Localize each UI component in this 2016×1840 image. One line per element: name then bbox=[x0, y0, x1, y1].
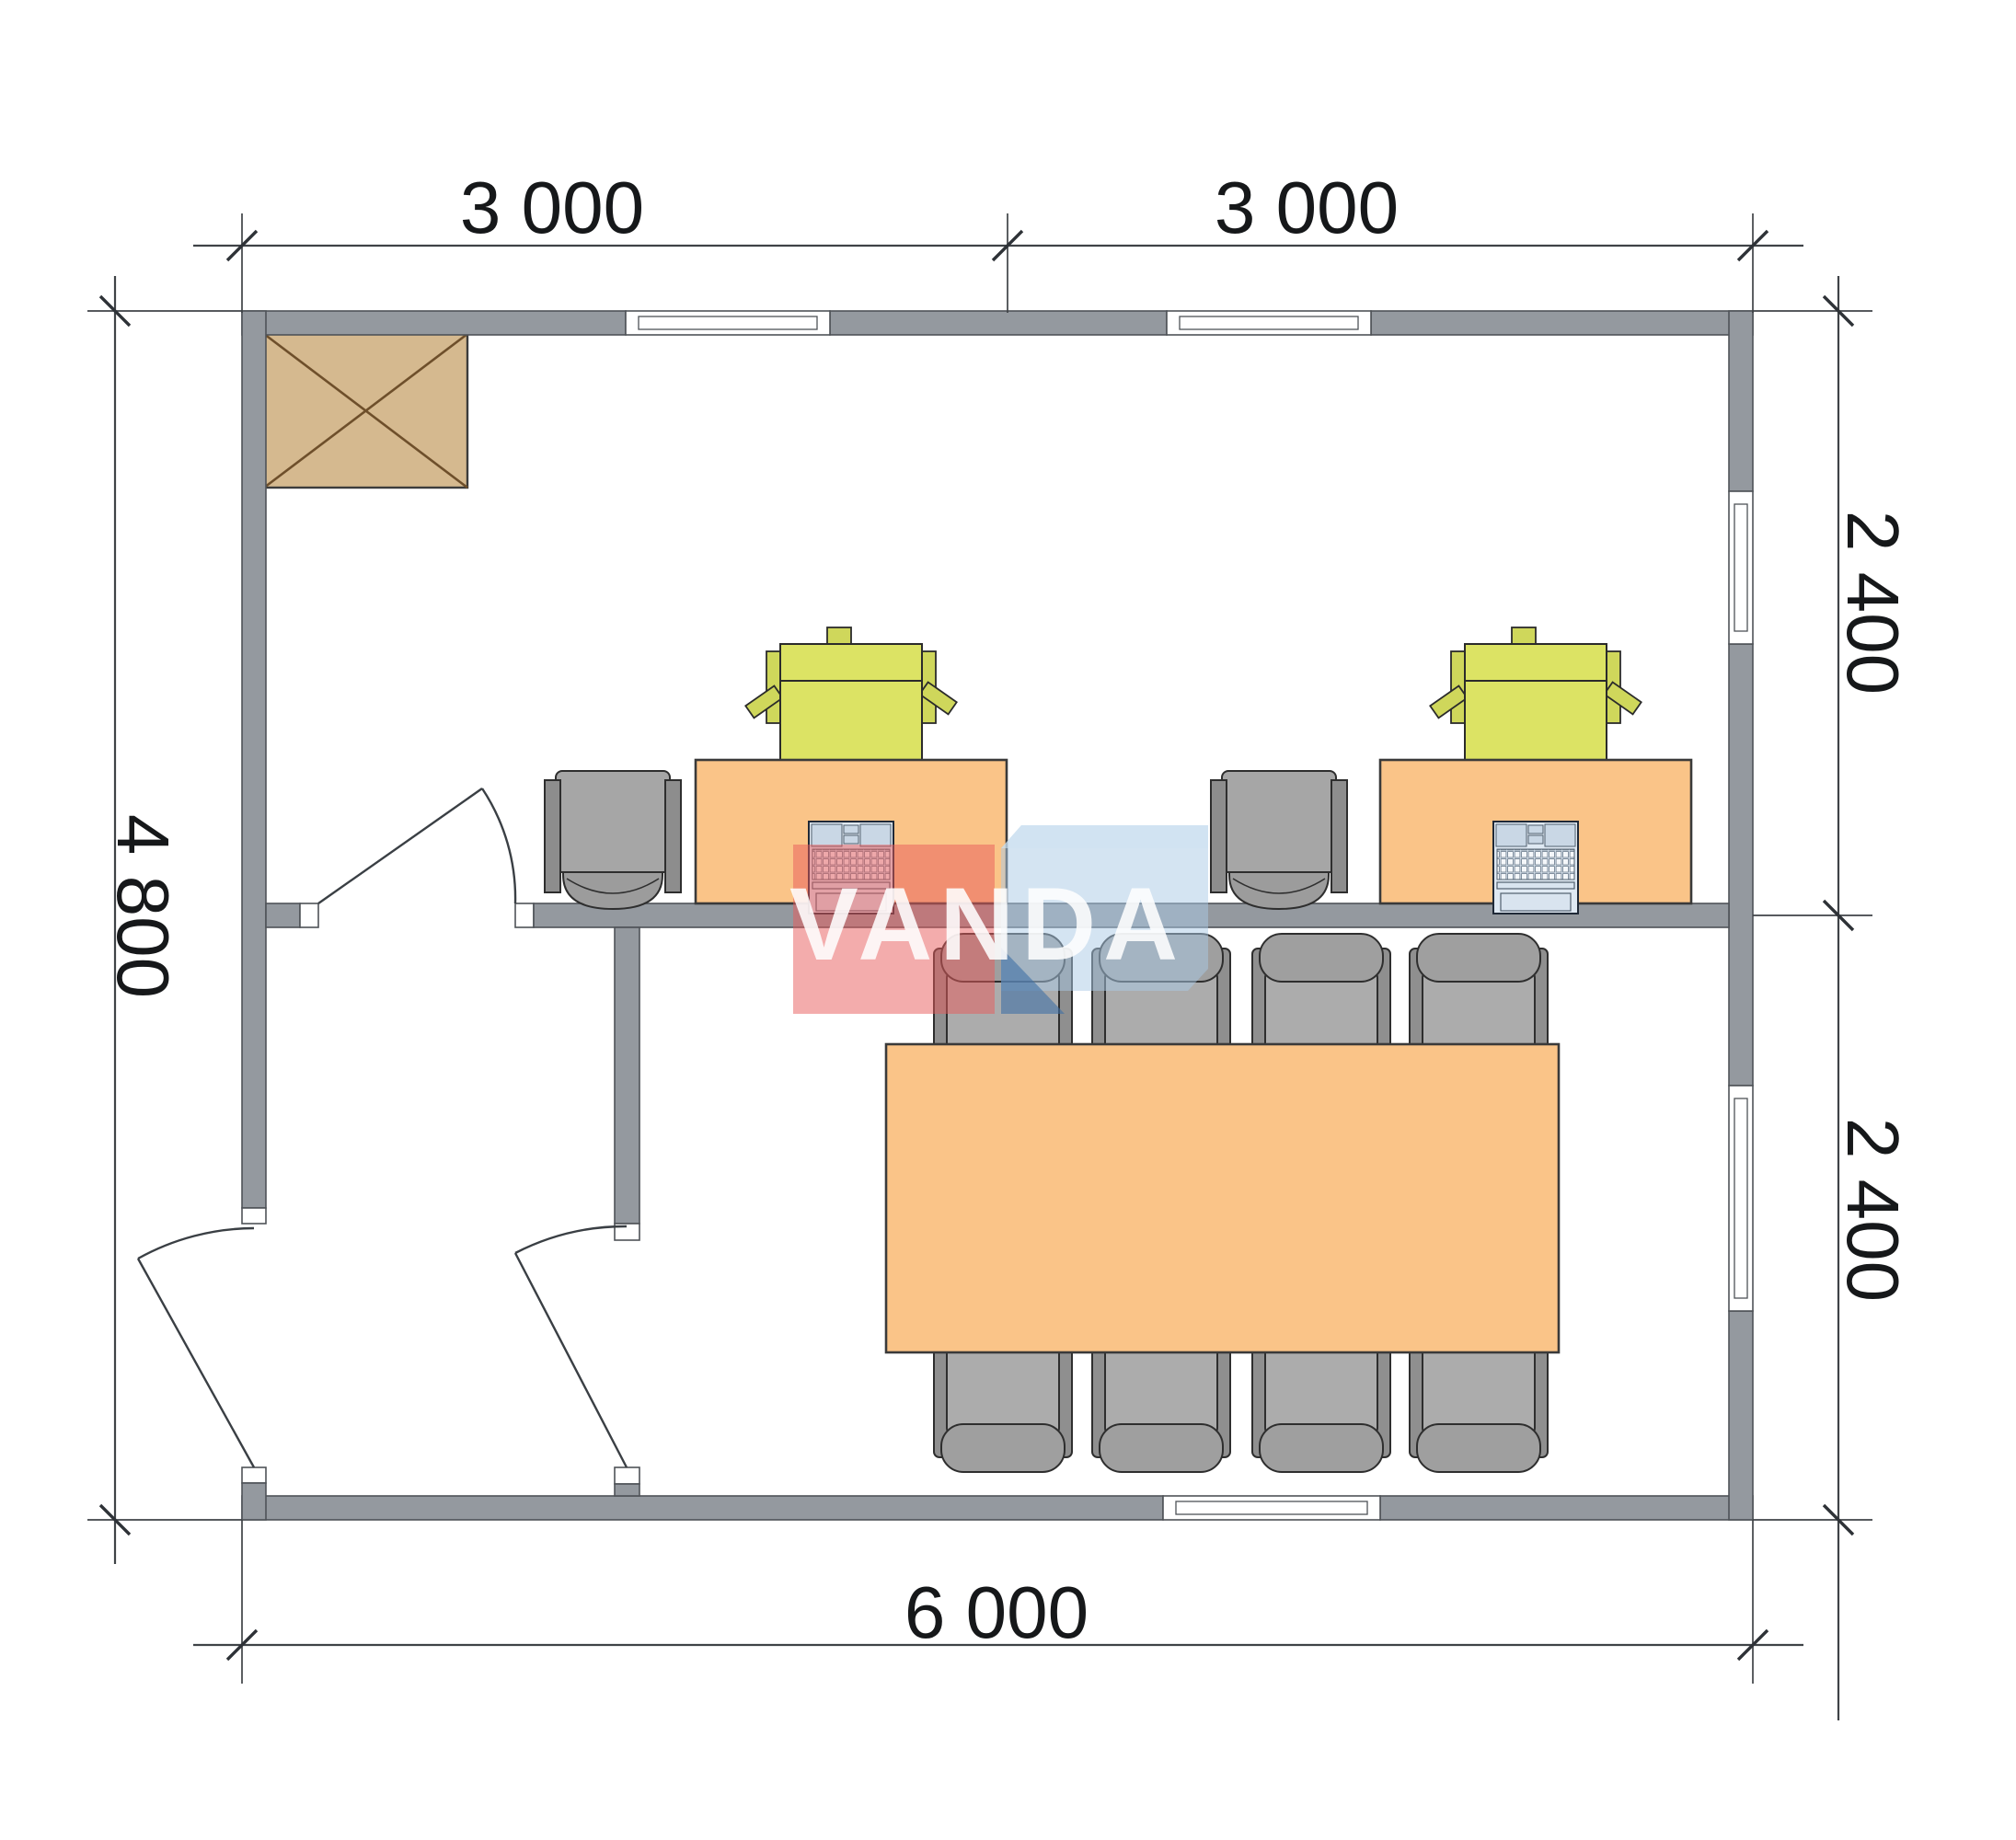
wall-bottom bbox=[1380, 1496, 1753, 1520]
door-jamb bbox=[300, 903, 318, 927]
wall-right bbox=[1729, 644, 1753, 1086]
window-top-right bbox=[1167, 311, 1371, 335]
meeting-area bbox=[886, 934, 1559, 1472]
door-vestibule bbox=[515, 1226, 627, 1467]
wall-left bbox=[242, 1483, 266, 1520]
door-jamb bbox=[242, 1208, 266, 1224]
window-bottom bbox=[1163, 1496, 1380, 1520]
printer-body bbox=[780, 644, 922, 762]
window-right-lower bbox=[1729, 1086, 1753, 1311]
watermark-blue-box-top bbox=[1001, 825, 1208, 848]
wall-partition bbox=[266, 903, 300, 927]
dim-label-bottom: 6 000 bbox=[904, 1571, 1089, 1653]
wall-bottom bbox=[242, 1496, 1163, 1520]
keyboard-laptop bbox=[1493, 822, 1578, 914]
office-chair bbox=[545, 771, 681, 909]
door-jamb bbox=[242, 1467, 266, 1483]
cabinet bbox=[264, 334, 467, 488]
door-jamb bbox=[615, 1467, 639, 1484]
wall-right bbox=[1729, 1311, 1753, 1520]
wall-vestibule bbox=[615, 1484, 639, 1496]
wall-top bbox=[242, 311, 626, 335]
dim-label-right-lower: 2 400 bbox=[1832, 1118, 1914, 1302]
door-partition bbox=[318, 788, 515, 903]
meeting-table bbox=[886, 1044, 1559, 1352]
wall-top bbox=[830, 311, 1167, 335]
wall-left bbox=[242, 311, 266, 1208]
wall-vestibule bbox=[615, 927, 639, 1224]
workstation-2 bbox=[1211, 627, 1691, 914]
dim-label-top-left: 3 000 bbox=[460, 167, 644, 248]
printer bbox=[1430, 627, 1641, 762]
window-top-left bbox=[626, 311, 830, 335]
printer-body bbox=[1465, 644, 1607, 762]
dim-label-right-upper: 2 400 bbox=[1832, 511, 1914, 695]
floor-plan-page: 3 000 3 000 4 800 2 400 2 400 6 000 VAND… bbox=[0, 0, 2016, 1840]
office-chair bbox=[1211, 771, 1347, 909]
window-right-upper bbox=[1729, 491, 1753, 644]
wall-top bbox=[1371, 311, 1753, 335]
dim-label-left: 4 800 bbox=[102, 814, 184, 998]
watermark-text: VANDA bbox=[789, 867, 1185, 982]
dim-label-top-right: 3 000 bbox=[1215, 167, 1399, 248]
floor-plan-canvas: 3 000 3 000 4 800 2 400 2 400 6 000 VAND… bbox=[0, 0, 2016, 1840]
door-entry-left bbox=[138, 1228, 254, 1467]
wall-right bbox=[1729, 311, 1753, 491]
door-jamb bbox=[515, 903, 534, 927]
printer bbox=[745, 627, 956, 762]
